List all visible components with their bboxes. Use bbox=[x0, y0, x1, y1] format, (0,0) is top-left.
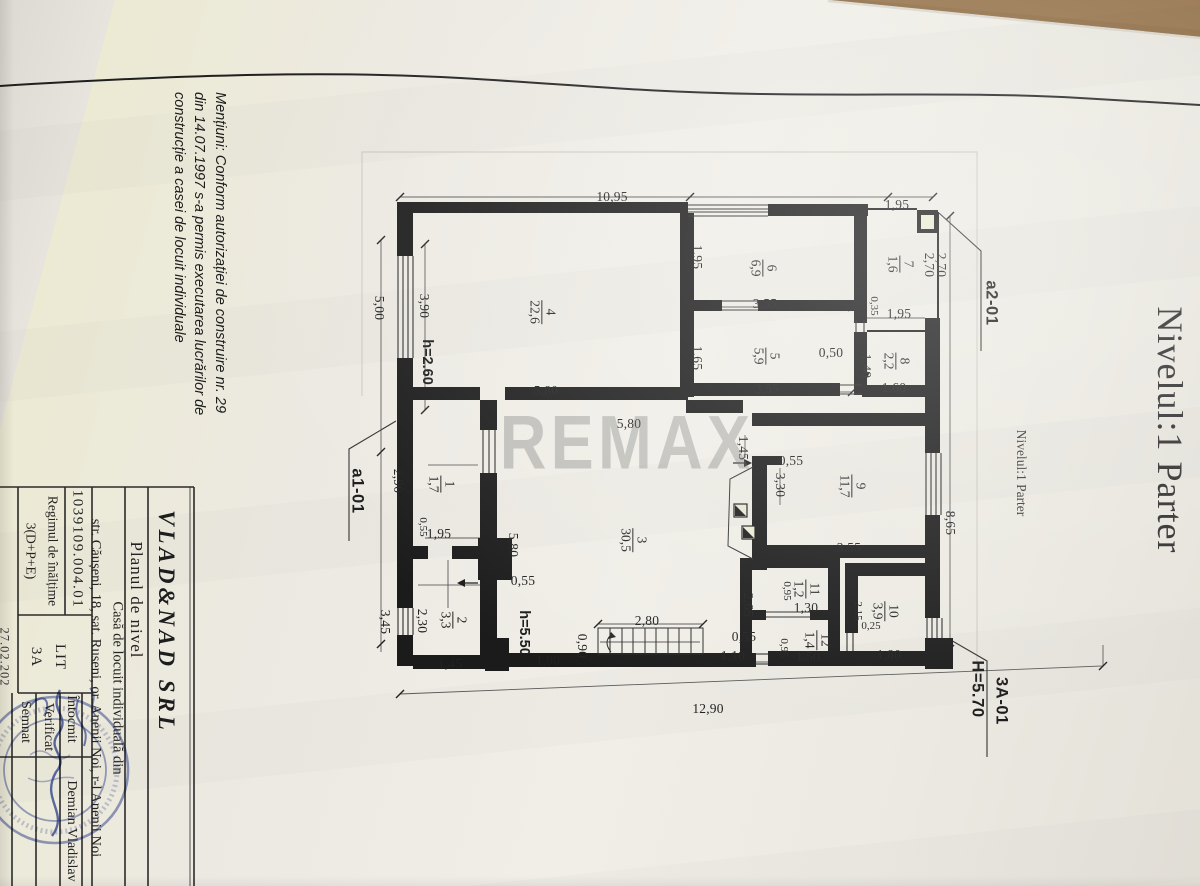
dim-050: 0,50 bbox=[819, 345, 843, 361]
room-number: 7 bbox=[900, 256, 916, 273]
room-number: 8 bbox=[896, 353, 912, 370]
dim-355-room9: 3,55 bbox=[837, 540, 861, 556]
room-number: 5 bbox=[766, 348, 782, 365]
dim-180: 1,80 bbox=[877, 647, 901, 663]
dim-195-room8: 1,95 bbox=[887, 306, 911, 322]
room-area: 1,4 bbox=[802, 630, 817, 650]
room-area: 30,5 bbox=[618, 528, 633, 552]
object-address: Casă de locuit individuală dinstr. Căușe… bbox=[84, 470, 129, 886]
mentiuni-note: Mențiuni: Conform autorizației de constr… bbox=[168, 92, 230, 494]
room-area: 11,7 bbox=[837, 474, 852, 497]
dim-265: 2,65 bbox=[740, 593, 756, 617]
room-number: 11 bbox=[806, 580, 822, 599]
watermark: REMAX bbox=[500, 400, 755, 487]
dim-145-bottom: 1,45 bbox=[438, 656, 462, 672]
room-number: 3 bbox=[633, 528, 649, 552]
room-number: 10 bbox=[885, 601, 901, 621]
room-number: 12 bbox=[817, 630, 833, 650]
dim-055-bottom: 0,55 bbox=[732, 629, 756, 645]
room-area: 6,9 bbox=[748, 260, 763, 277]
dim-top-1095: 10,95 bbox=[596, 189, 627, 205]
height-label-h260: h=2.60 bbox=[419, 339, 435, 385]
room-label-11: 111,2 bbox=[791, 580, 822, 599]
dim-165: 1,65 bbox=[689, 346, 705, 370]
date-partial: 27.02.202 bbox=[0, 628, 12, 687]
lit-cell: LIT3A bbox=[24, 644, 72, 670]
room-area: 1,2 bbox=[791, 580, 806, 599]
dim-025: 0,25 bbox=[861, 620, 880, 632]
dim-110: 1,10 bbox=[721, 648, 745, 664]
dim-150: 1,50 bbox=[796, 649, 820, 665]
room-area: 1,7 bbox=[426, 476, 441, 493]
dim-270-b: 2,70 bbox=[933, 253, 949, 277]
cadastral-number: 1039109.004.01 bbox=[69, 490, 86, 609]
room-label-9: 911,7 bbox=[837, 474, 868, 497]
room-area: 3,9 bbox=[870, 601, 885, 621]
room-number: 1 bbox=[441, 476, 457, 493]
room-area: 2,2 bbox=[881, 353, 896, 370]
room-area: 3,3 bbox=[438, 612, 453, 629]
dim-095-room12: 0,95 bbox=[778, 638, 790, 657]
room-label-4: 422,6 bbox=[527, 300, 558, 324]
room-number: 4 bbox=[542, 300, 558, 324]
room-label-2: 23,3 bbox=[438, 612, 469, 629]
dim-290: 2,90 bbox=[390, 469, 406, 493]
author-name: Demian Vladislav bbox=[63, 780, 79, 881]
room-label-5: 55,9 bbox=[751, 348, 782, 365]
dim-top-195: 1,95 bbox=[885, 197, 909, 213]
drawing-title: Planul de nivel bbox=[126, 542, 146, 659]
dim-160: 1,60 bbox=[882, 380, 906, 396]
dim-230: 2,30 bbox=[414, 609, 430, 633]
room-area: 1,6 bbox=[885, 256, 900, 273]
dim-355-room5: 3,55 bbox=[755, 381, 779, 397]
room-area: 5,9 bbox=[751, 348, 766, 365]
dim-500: 5,00 bbox=[371, 296, 387, 320]
scanned-floor-plan-sheet: 10,951,952,702,701,953,550,351,951,650,5… bbox=[0, 0, 1200, 886]
height-regime-cell: Regimul de înălțime3(D+P+E) bbox=[20, 476, 63, 626]
dim-055-mid: 0,55 bbox=[511, 573, 535, 589]
dim-580-a: 5,80 bbox=[534, 383, 558, 399]
dim-055-hall: 0,55 bbox=[779, 453, 803, 469]
company-name: VLAD&NAD SRL bbox=[153, 510, 179, 734]
room-label-6: 66,9 bbox=[748, 260, 779, 277]
section-label-a1-01: a1-01 bbox=[348, 468, 367, 513]
dim-865: 8,65 bbox=[942, 511, 958, 535]
room-label-12: 121,4 bbox=[802, 630, 833, 650]
dim-035: 0,35 bbox=[868, 296, 880, 315]
room-label-8: 82,2 bbox=[881, 353, 912, 370]
room-label-10: 103,9 bbox=[870, 601, 901, 621]
dim-195-room2: 1,95 bbox=[427, 526, 451, 542]
dim-330: 3,30 bbox=[772, 473, 788, 497]
room-label-3: 330,5 bbox=[618, 528, 649, 552]
dim-190: 1,90 bbox=[536, 653, 560, 669]
room-number: 2 bbox=[453, 612, 469, 629]
row-intocmit: Întocmit bbox=[63, 695, 79, 742]
height-label-h550: h=5.50 bbox=[516, 610, 532, 656]
row-semnat: Semnat bbox=[17, 701, 33, 743]
dim-390: 3,90 bbox=[416, 294, 432, 318]
dim-195-room6: 1,95 bbox=[689, 245, 705, 269]
level-title-large: Nivelul:1 Parter bbox=[1149, 307, 1191, 554]
room-label-7: 71,6 bbox=[885, 256, 916, 273]
dim-090: 0,90 bbox=[574, 634, 590, 658]
dim-130: 1,30 bbox=[794, 600, 818, 616]
section-label-3a-01: 3A-01 bbox=[992, 677, 1011, 725]
dim-215: 2,15 bbox=[852, 601, 864, 620]
room-number: 9 bbox=[852, 474, 868, 497]
dim-280: 2,80 bbox=[635, 613, 659, 629]
room-number: 6 bbox=[763, 260, 779, 277]
label-layer: 10,951,952,702,701,953,550,351,951,650,5… bbox=[0, 0, 1200, 886]
row-verificat: Verificat bbox=[40, 703, 56, 751]
room-label-1: 11,7 bbox=[426, 476, 457, 493]
dim-1290: 12,90 bbox=[692, 701, 723, 717]
dim-355-room6: 3,55 bbox=[753, 296, 777, 312]
dim-345: 3,45 bbox=[377, 610, 393, 634]
height-label-h570: H=5.70 bbox=[968, 660, 987, 717]
dim-140: 1,40 bbox=[858, 354, 874, 378]
room-area: 22,6 bbox=[527, 300, 542, 324]
dim-580-c: 5,80 bbox=[505, 533, 521, 557]
section-label-a2-01: a2-01 bbox=[982, 280, 1001, 325]
level-title-small: Nivelul:1 Parter bbox=[1013, 430, 1029, 517]
